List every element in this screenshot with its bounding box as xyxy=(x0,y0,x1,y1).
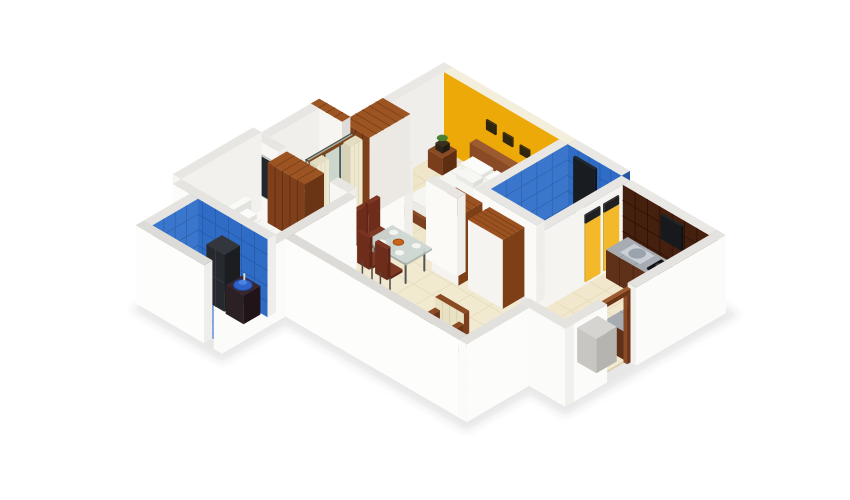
dining-chair-s2-back xyxy=(375,240,390,280)
dining-chair-s1-back xyxy=(357,229,372,269)
table-fruit-bowl xyxy=(393,239,404,245)
yellow-tall-panel-2 xyxy=(584,214,600,282)
entrance-door-post-1 xyxy=(624,291,631,364)
table-plate-4 xyxy=(395,250,404,255)
entry-gray-cabinet xyxy=(577,316,617,374)
nightstand-plant xyxy=(437,135,448,142)
table-plate-1 xyxy=(389,230,398,235)
table-plate-2 xyxy=(412,243,421,248)
bath2-basin-highlight xyxy=(239,280,247,285)
bedroom1-south-wall-b xyxy=(426,176,466,277)
sink-basin xyxy=(628,248,646,258)
floor-plan-svg xyxy=(0,0,850,500)
floor-plan-3d-render xyxy=(0,0,850,500)
